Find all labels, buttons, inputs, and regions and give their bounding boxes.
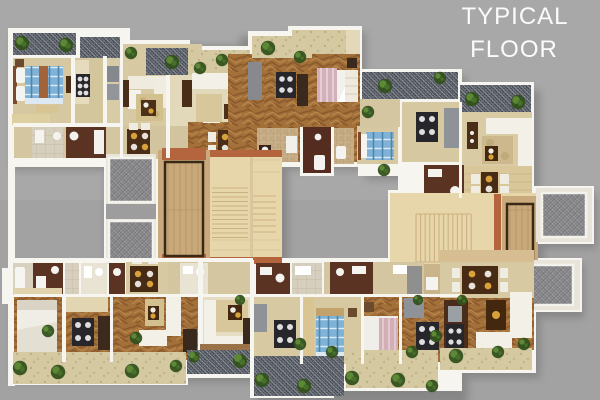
svg-text:TYPICAL: TYPICAL <box>461 3 568 30</box>
svg-text:FLOOR: FLOOR <box>470 36 558 63</box>
